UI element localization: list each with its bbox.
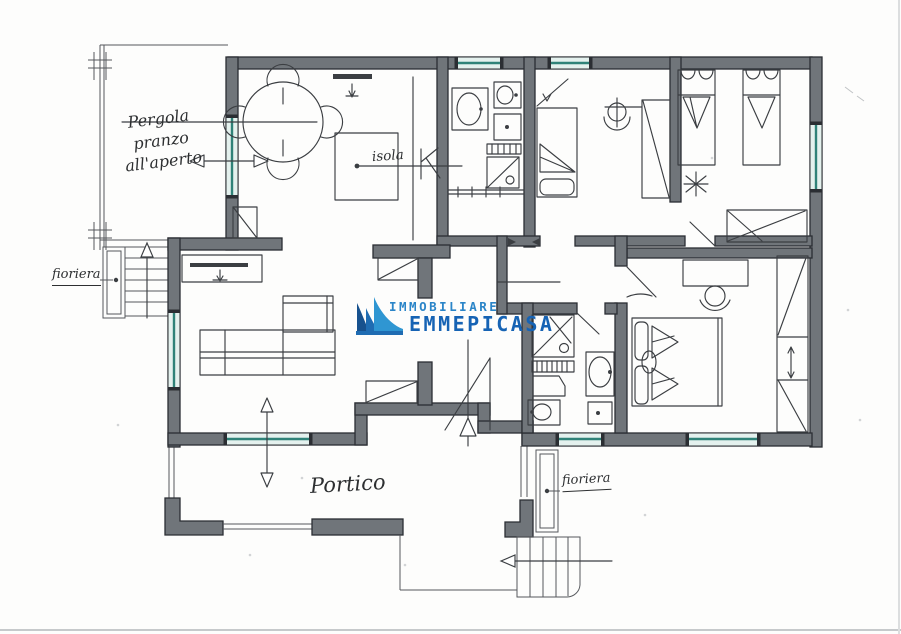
label-pergola: Pergola pranzo all'aperto [101, 101, 220, 179]
label-fioriera-bottom: fioriera [562, 470, 611, 492]
label-isola: isola [371, 146, 404, 166]
window-top-bedroom [548, 57, 592, 69]
window-right [810, 122, 822, 192]
master-bedroom-furniture [627, 256, 808, 432]
label-portico: Portico [309, 468, 386, 500]
stairs-bottom [501, 537, 612, 597]
bathroom-1-fixtures [448, 82, 524, 197]
agency-logo-line2: EMMEPICASA [409, 312, 554, 336]
window-left-upper [226, 115, 238, 198]
floor-plan-image: Pergola pranzo all'aperto fioriera isola… [0, 0, 901, 634]
portico-structure [165, 446, 533, 590]
window-bottom-right-1 [556, 433, 604, 446]
living-room-furniture [182, 207, 418, 403]
stairs-left [125, 243, 170, 318]
bedroom-3-furniture [678, 70, 807, 246]
walls [168, 57, 822, 447]
window-bottom-right-2 [686, 433, 760, 446]
window-left-lower [168, 310, 180, 390]
bedroom-2-furniture [537, 79, 670, 198]
window-bottom-left [224, 433, 312, 445]
planter-bottom [536, 450, 560, 532]
label-fioriera-left: fioriera [52, 266, 101, 286]
window-top-bathroom [455, 57, 503, 69]
planter-left [100, 247, 125, 318]
